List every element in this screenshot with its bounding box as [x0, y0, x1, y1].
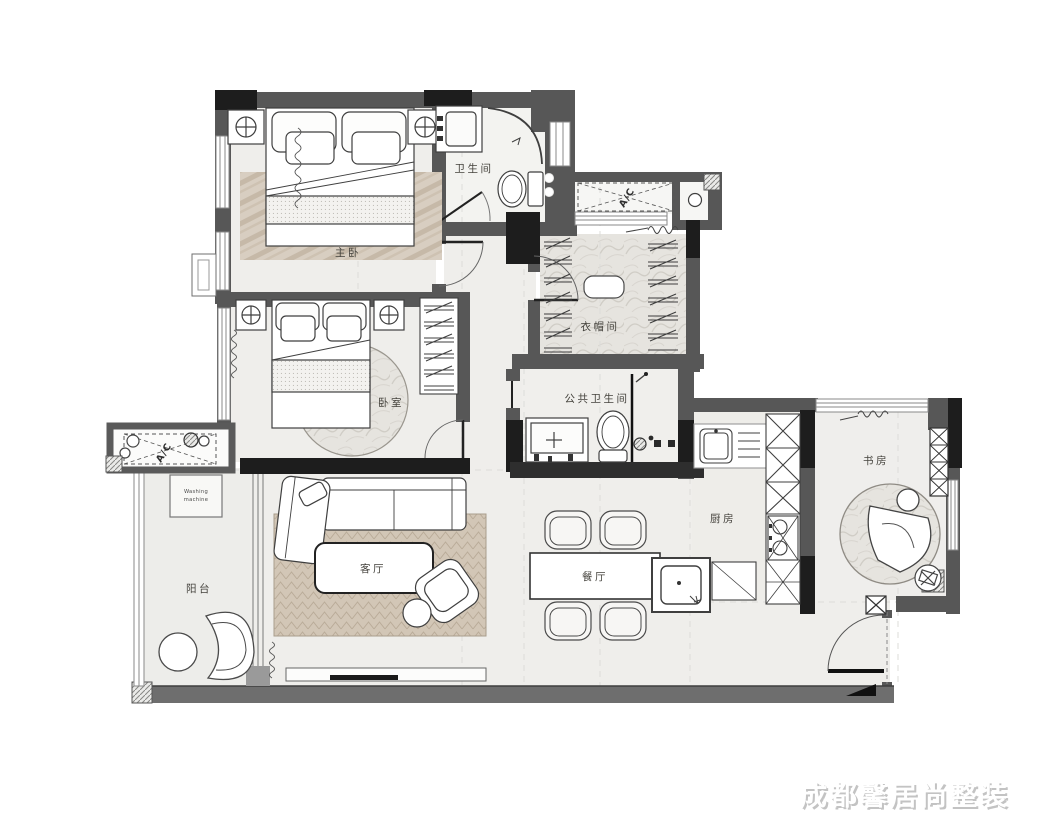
wall-closet-left-lower — [528, 300, 540, 356]
wall-pubbath-left-a — [506, 369, 520, 381]
label-dining-room: 餐厅 — [582, 570, 608, 583]
label-balcony: 阳台 — [186, 582, 212, 595]
wall-black-bed2-bottom — [240, 458, 470, 474]
window-study-top — [816, 399, 928, 412]
label-kitchen: 厨房 — [710, 512, 736, 525]
study-chair-symbol — [897, 489, 919, 511]
window-shaft — [550, 122, 570, 166]
wall-black-study-col — [948, 398, 962, 468]
hatch-corner-tr — [704, 174, 720, 190]
wall-pubbath-top — [512, 354, 704, 369]
washing-machine-label-2: machine — [184, 497, 208, 503]
window-master-bay — [192, 254, 216, 296]
vanity-symbol — [436, 106, 482, 152]
balcony-railing — [134, 470, 144, 686]
kitchen-tall-cabinets — [766, 414, 800, 604]
label-master-bedroom: 主卧 — [335, 246, 361, 259]
label-living-room: 客厅 — [360, 562, 386, 575]
bedroom2-nightstand-left — [236, 300, 266, 330]
wall-black-closet-top — [686, 220, 700, 258]
wall-black-top-bath — [424, 90, 472, 106]
window-ac-top — [575, 212, 667, 225]
master-nightstand-left — [228, 110, 264, 144]
washing-machine-label-1: Washing — [184, 489, 208, 495]
wall-black-kitchen-right-top — [800, 410, 815, 468]
bedroom2-wardrobe — [420, 298, 458, 394]
wall-kitchen-top — [678, 398, 818, 412]
balcony-side-table — [159, 633, 197, 671]
bedroom2-nightstand-right — [374, 300, 404, 330]
pipe-symbol-1 — [127, 435, 139, 447]
drain-symbol — [184, 433, 198, 447]
master-bedroom-furniture — [228, 108, 442, 260]
cooktop-symbol — [768, 516, 798, 560]
wall-study-topright — [928, 398, 950, 430]
wall-pubbath-left-b — [506, 408, 520, 422]
wall-bath-bottom — [432, 222, 577, 236]
island-sink-symbol — [652, 558, 710, 612]
study-cabinet — [930, 428, 948, 496]
label-bedroom: 卧室 — [378, 396, 404, 409]
bedroom2-bed-symbol — [272, 300, 370, 428]
wall-study-bottom — [896, 596, 960, 612]
pipe-symbol-3 — [199, 436, 209, 446]
label-bathroom: 卫生间 — [455, 162, 494, 175]
vanity-symbol-public — [526, 418, 588, 462]
toilet-symbol-master — [498, 171, 543, 207]
wall-black-kitchen-right-bottom — [800, 556, 815, 614]
window-study-right — [948, 480, 958, 550]
window-bed2-left — [218, 308, 230, 420]
label-cloakroom: 衣帽间 — [581, 320, 620, 333]
toilet-symbol-public — [597, 411, 629, 462]
label-study: 书房 — [863, 454, 889, 467]
wall-bottom-exterior — [132, 686, 894, 703]
flue-symbol — [689, 194, 702, 207]
washing-machine: Washing machine — [170, 475, 222, 517]
wall-pubbath-bottom — [510, 462, 704, 478]
watermark-text: 成都馨居尚整装 — [800, 781, 1010, 812]
wall-topright-top — [572, 172, 722, 182]
label-public-bathroom: 公共卫生间 — [565, 392, 630, 405]
dressing-stool-symbol — [584, 276, 624, 298]
ac-platform-left: A/C — [106, 426, 232, 472]
hatch-corner-ac — [106, 456, 122, 472]
wall-black-corner-tl — [215, 90, 257, 110]
tv-console-symbol — [286, 668, 486, 681]
floor-plan-canvas: A/C A/C Washing machine — [0, 0, 1056, 823]
tv-symbol — [330, 675, 398, 680]
watermark: 成都馨居尚整装 成都馨居尚整装 — [800, 781, 1012, 814]
floor-outlet-symbol — [915, 565, 941, 591]
floor-plan-page: A/C A/C Washing machine — [0, 0, 1056, 823]
master-bed-symbol — [266, 108, 414, 246]
entry-column — [866, 596, 886, 614]
wall-top-master — [215, 92, 545, 108]
